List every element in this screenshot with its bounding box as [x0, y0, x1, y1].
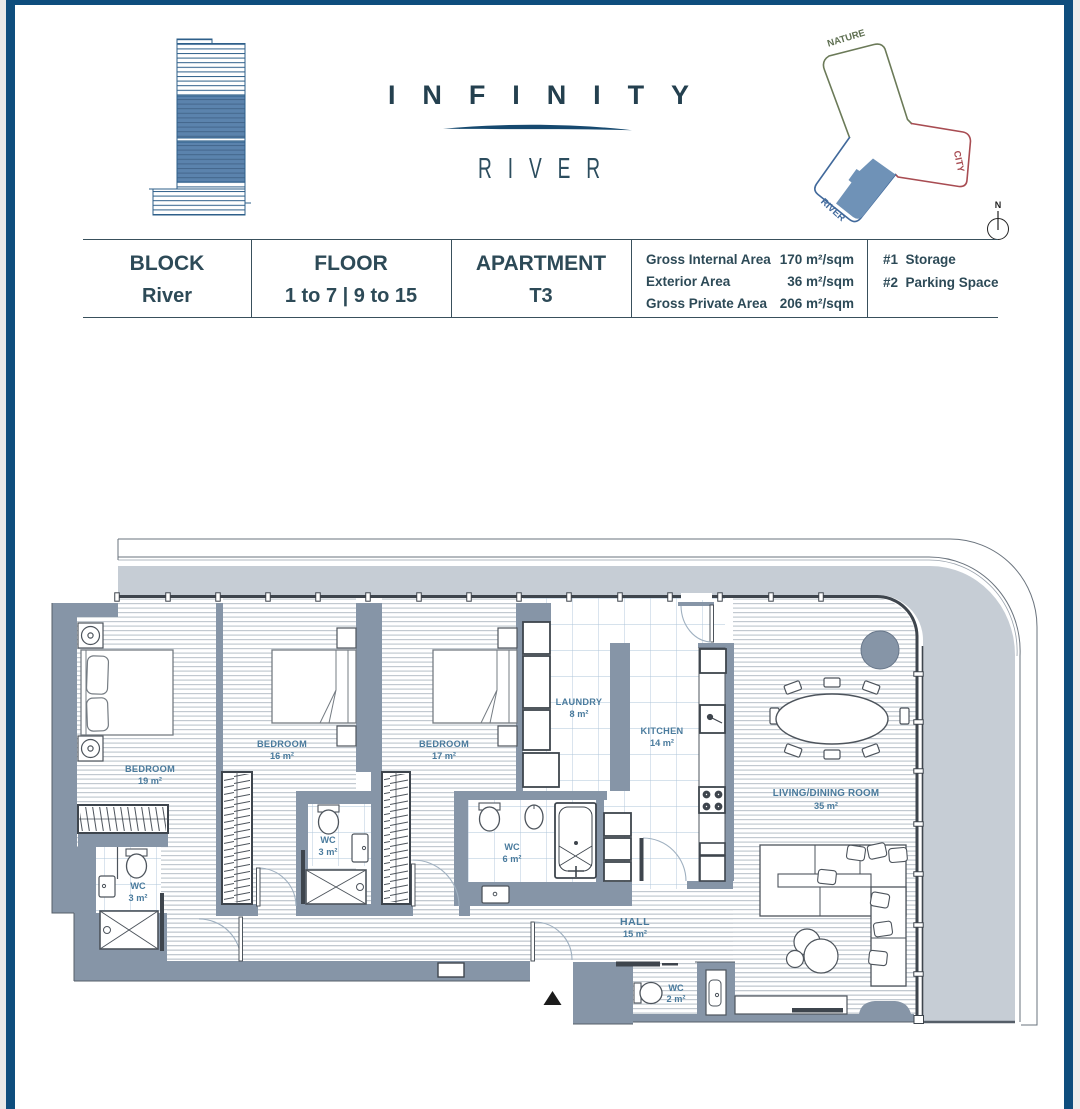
svg-text:2 m²: 2 m² — [667, 994, 686, 1004]
svg-text:8 m²: 8 m² — [570, 709, 589, 719]
svg-text:BEDROOM: BEDROOM — [257, 739, 307, 749]
svg-text:HALL: HALL — [620, 916, 650, 928]
svg-text:15 m²: 15 m² — [623, 929, 647, 939]
svg-text:LIVING/DINING ROOM: LIVING/DINING ROOM — [773, 788, 879, 799]
svg-text:WC: WC — [130, 881, 146, 891]
svg-text:19 m²: 19 m² — [138, 776, 162, 786]
svg-text:LAUNDRY: LAUNDRY — [556, 697, 603, 707]
svg-text:17 m²: 17 m² — [432, 751, 456, 761]
svg-text:6 m²: 6 m² — [503, 854, 522, 864]
svg-text:3 m²: 3 m² — [129, 893, 148, 903]
svg-text:BEDROOM: BEDROOM — [419, 739, 469, 749]
svg-text:35 m²: 35 m² — [814, 801, 838, 811]
svg-text:3 m²: 3 m² — [319, 847, 338, 857]
svg-text:16 m²: 16 m² — [270, 751, 294, 761]
svg-text:BEDROOM: BEDROOM — [125, 764, 175, 774]
svg-text:KITCHEN: KITCHEN — [641, 726, 684, 736]
svg-text:14 m²: 14 m² — [650, 738, 674, 748]
svg-text:WC: WC — [504, 842, 520, 852]
svg-text:WC: WC — [668, 983, 684, 993]
svg-text:WC: WC — [320, 835, 336, 845]
